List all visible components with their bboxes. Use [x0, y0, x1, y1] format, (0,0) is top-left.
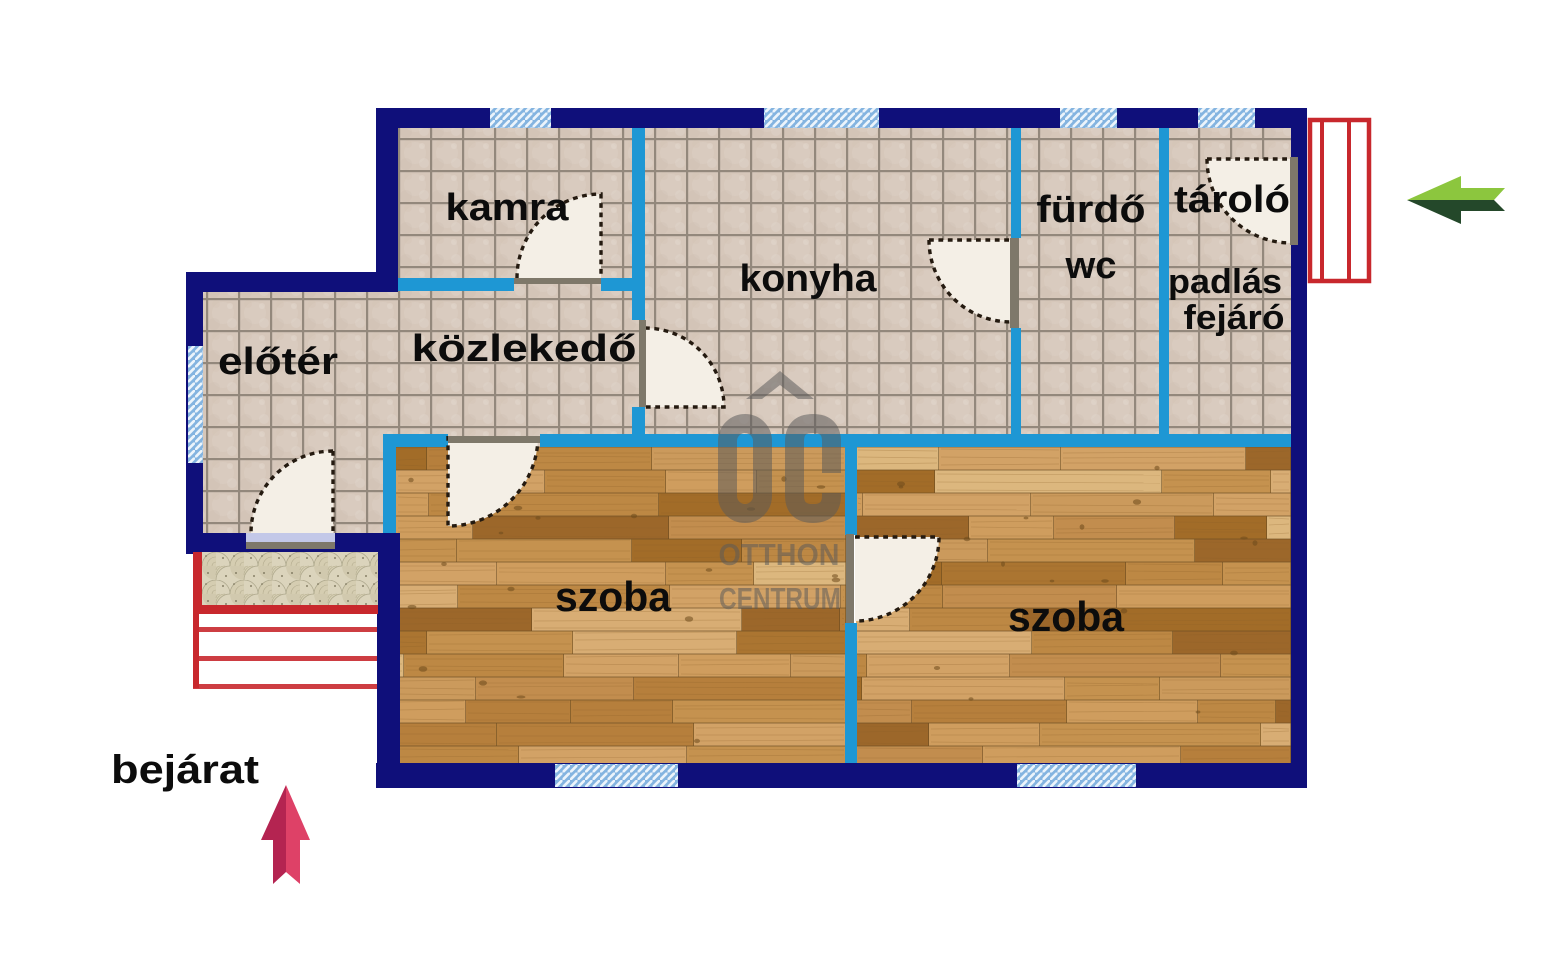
svg-text:fürdő: fürdő — [1037, 189, 1146, 231]
svg-text:CENTRUM: CENTRUM — [719, 581, 841, 616]
svg-text:szoba: szoba — [555, 573, 672, 620]
svg-text:padlás: padlás — [1168, 263, 1282, 301]
svg-text:fejáró: fejáró — [1184, 299, 1285, 337]
svg-text:OTTHON: OTTHON — [719, 537, 840, 572]
svg-text:bejárat: bejárat — [111, 748, 259, 792]
svg-text:konyha: konyha — [740, 258, 878, 300]
svg-text:közlekedő: közlekedő — [412, 328, 637, 370]
svg-text:wc: wc — [1064, 245, 1116, 287]
svg-text:kamra: kamra — [446, 187, 570, 229]
svg-text:tároló: tároló — [1174, 179, 1290, 221]
svg-text:előtér: előtér — [218, 341, 338, 383]
svg-text:szoba: szoba — [1008, 593, 1125, 640]
